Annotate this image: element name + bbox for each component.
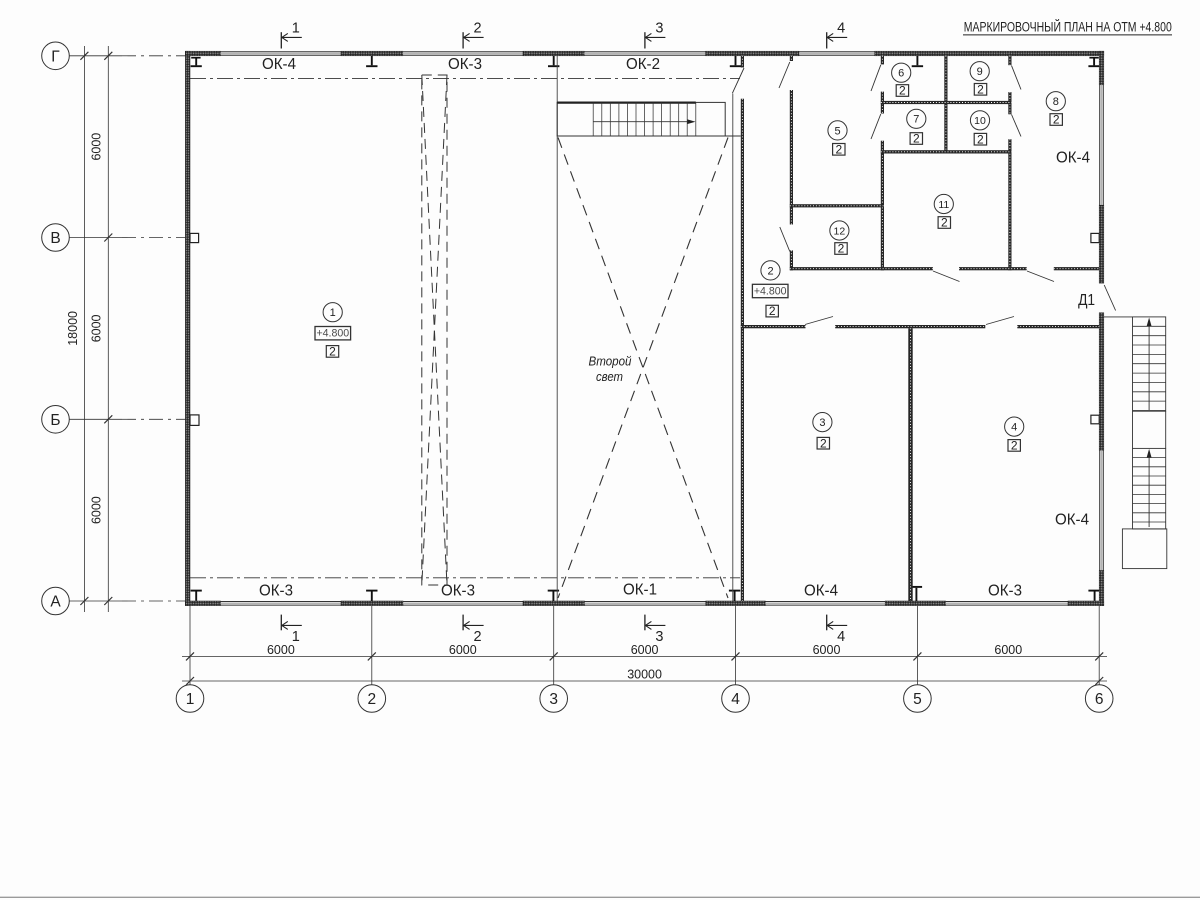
svg-text:Д1: Д1 — [1078, 292, 1095, 309]
svg-text:ОК-3: ОК-3 — [988, 583, 1022, 600]
svg-text:2: 2 — [474, 629, 482, 645]
svg-text:5: 5 — [913, 691, 922, 708]
svg-text:7: 7 — [913, 114, 919, 126]
svg-text:6000: 6000 — [449, 643, 477, 657]
svg-text:6000: 6000 — [631, 643, 659, 657]
svg-text:2: 2 — [1053, 113, 1060, 127]
svg-text:ОК-3: ОК-3 — [448, 56, 482, 73]
svg-text:В: В — [50, 230, 60, 247]
svg-text:свет: свет — [596, 369, 623, 384]
svg-text:8: 8 — [1053, 96, 1059, 108]
svg-text:2: 2 — [769, 304, 776, 318]
svg-text:ОК-3: ОК-3 — [259, 583, 293, 600]
svg-text:ОК-4: ОК-4 — [804, 583, 838, 600]
svg-text:10: 10 — [974, 115, 986, 127]
svg-text:2: 2 — [977, 132, 984, 146]
svg-text:ОК-2: ОК-2 — [626, 56, 660, 73]
svg-text:ОК-4: ОК-4 — [262, 56, 296, 73]
svg-text:6000: 6000 — [90, 133, 104, 161]
svg-text:6000: 6000 — [994, 643, 1022, 657]
svg-text:1: 1 — [292, 21, 300, 37]
svg-text:30000: 30000 — [627, 667, 662, 681]
svg-text:9: 9 — [977, 66, 983, 78]
svg-text:4: 4 — [731, 691, 740, 708]
svg-text:1: 1 — [292, 629, 300, 645]
svg-text:Второй: Второй — [589, 354, 632, 369]
svg-text:+4.800: +4.800 — [754, 285, 787, 297]
svg-text:ОК-4: ОК-4 — [1055, 512, 1089, 529]
svg-text:2: 2 — [329, 345, 336, 359]
svg-text:МАРКИРОВОЧНЫЙ ПЛАН НА ОТМ +4.8: МАРКИРОВОЧНЫЙ ПЛАН НА ОТМ +4.800 — [964, 20, 1172, 35]
svg-text:6000: 6000 — [89, 496, 103, 524]
svg-text:2: 2 — [474, 21, 482, 37]
svg-text:3: 3 — [819, 417, 825, 429]
svg-text:2: 2 — [899, 84, 906, 98]
svg-text:2: 2 — [820, 436, 827, 450]
svg-text:Г: Г — [51, 48, 60, 65]
svg-text:6: 6 — [1095, 691, 1104, 708]
svg-text:6000: 6000 — [813, 643, 841, 657]
svg-text:3: 3 — [549, 691, 558, 708]
svg-text:1: 1 — [186, 691, 195, 708]
svg-text:1: 1 — [330, 307, 336, 319]
svg-text:4: 4 — [837, 629, 845, 645]
svg-text:А: А — [50, 594, 61, 611]
svg-text:2: 2 — [1011, 439, 1018, 453]
svg-text:3: 3 — [655, 21, 663, 37]
svg-text:2: 2 — [913, 132, 920, 146]
svg-text:2: 2 — [941, 216, 948, 230]
svg-text:11: 11 — [938, 199, 949, 211]
svg-text:5: 5 — [834, 125, 840, 137]
svg-text:6000: 6000 — [90, 314, 104, 342]
svg-text:3: 3 — [655, 629, 663, 645]
svg-text:6000: 6000 — [267, 643, 295, 657]
svg-text:18000: 18000 — [66, 311, 80, 346]
svg-text:ОК-1: ОК-1 — [623, 582, 657, 599]
svg-text:12: 12 — [834, 225, 846, 237]
svg-text:4: 4 — [837, 21, 845, 37]
svg-text:2: 2 — [838, 242, 845, 256]
svg-text:+4.800: +4.800 — [316, 328, 349, 340]
svg-text:Б: Б — [50, 412, 60, 429]
svg-text:ОК-3: ОК-3 — [441, 583, 475, 600]
svg-text:4: 4 — [1011, 422, 1017, 434]
svg-text:ОК-4: ОК-4 — [1056, 149, 1090, 166]
svg-text:2: 2 — [767, 265, 773, 277]
svg-text:2: 2 — [835, 142, 842, 156]
svg-text:2: 2 — [977, 82, 984, 96]
svg-text:6: 6 — [898, 68, 904, 80]
svg-text:2: 2 — [367, 691, 376, 708]
